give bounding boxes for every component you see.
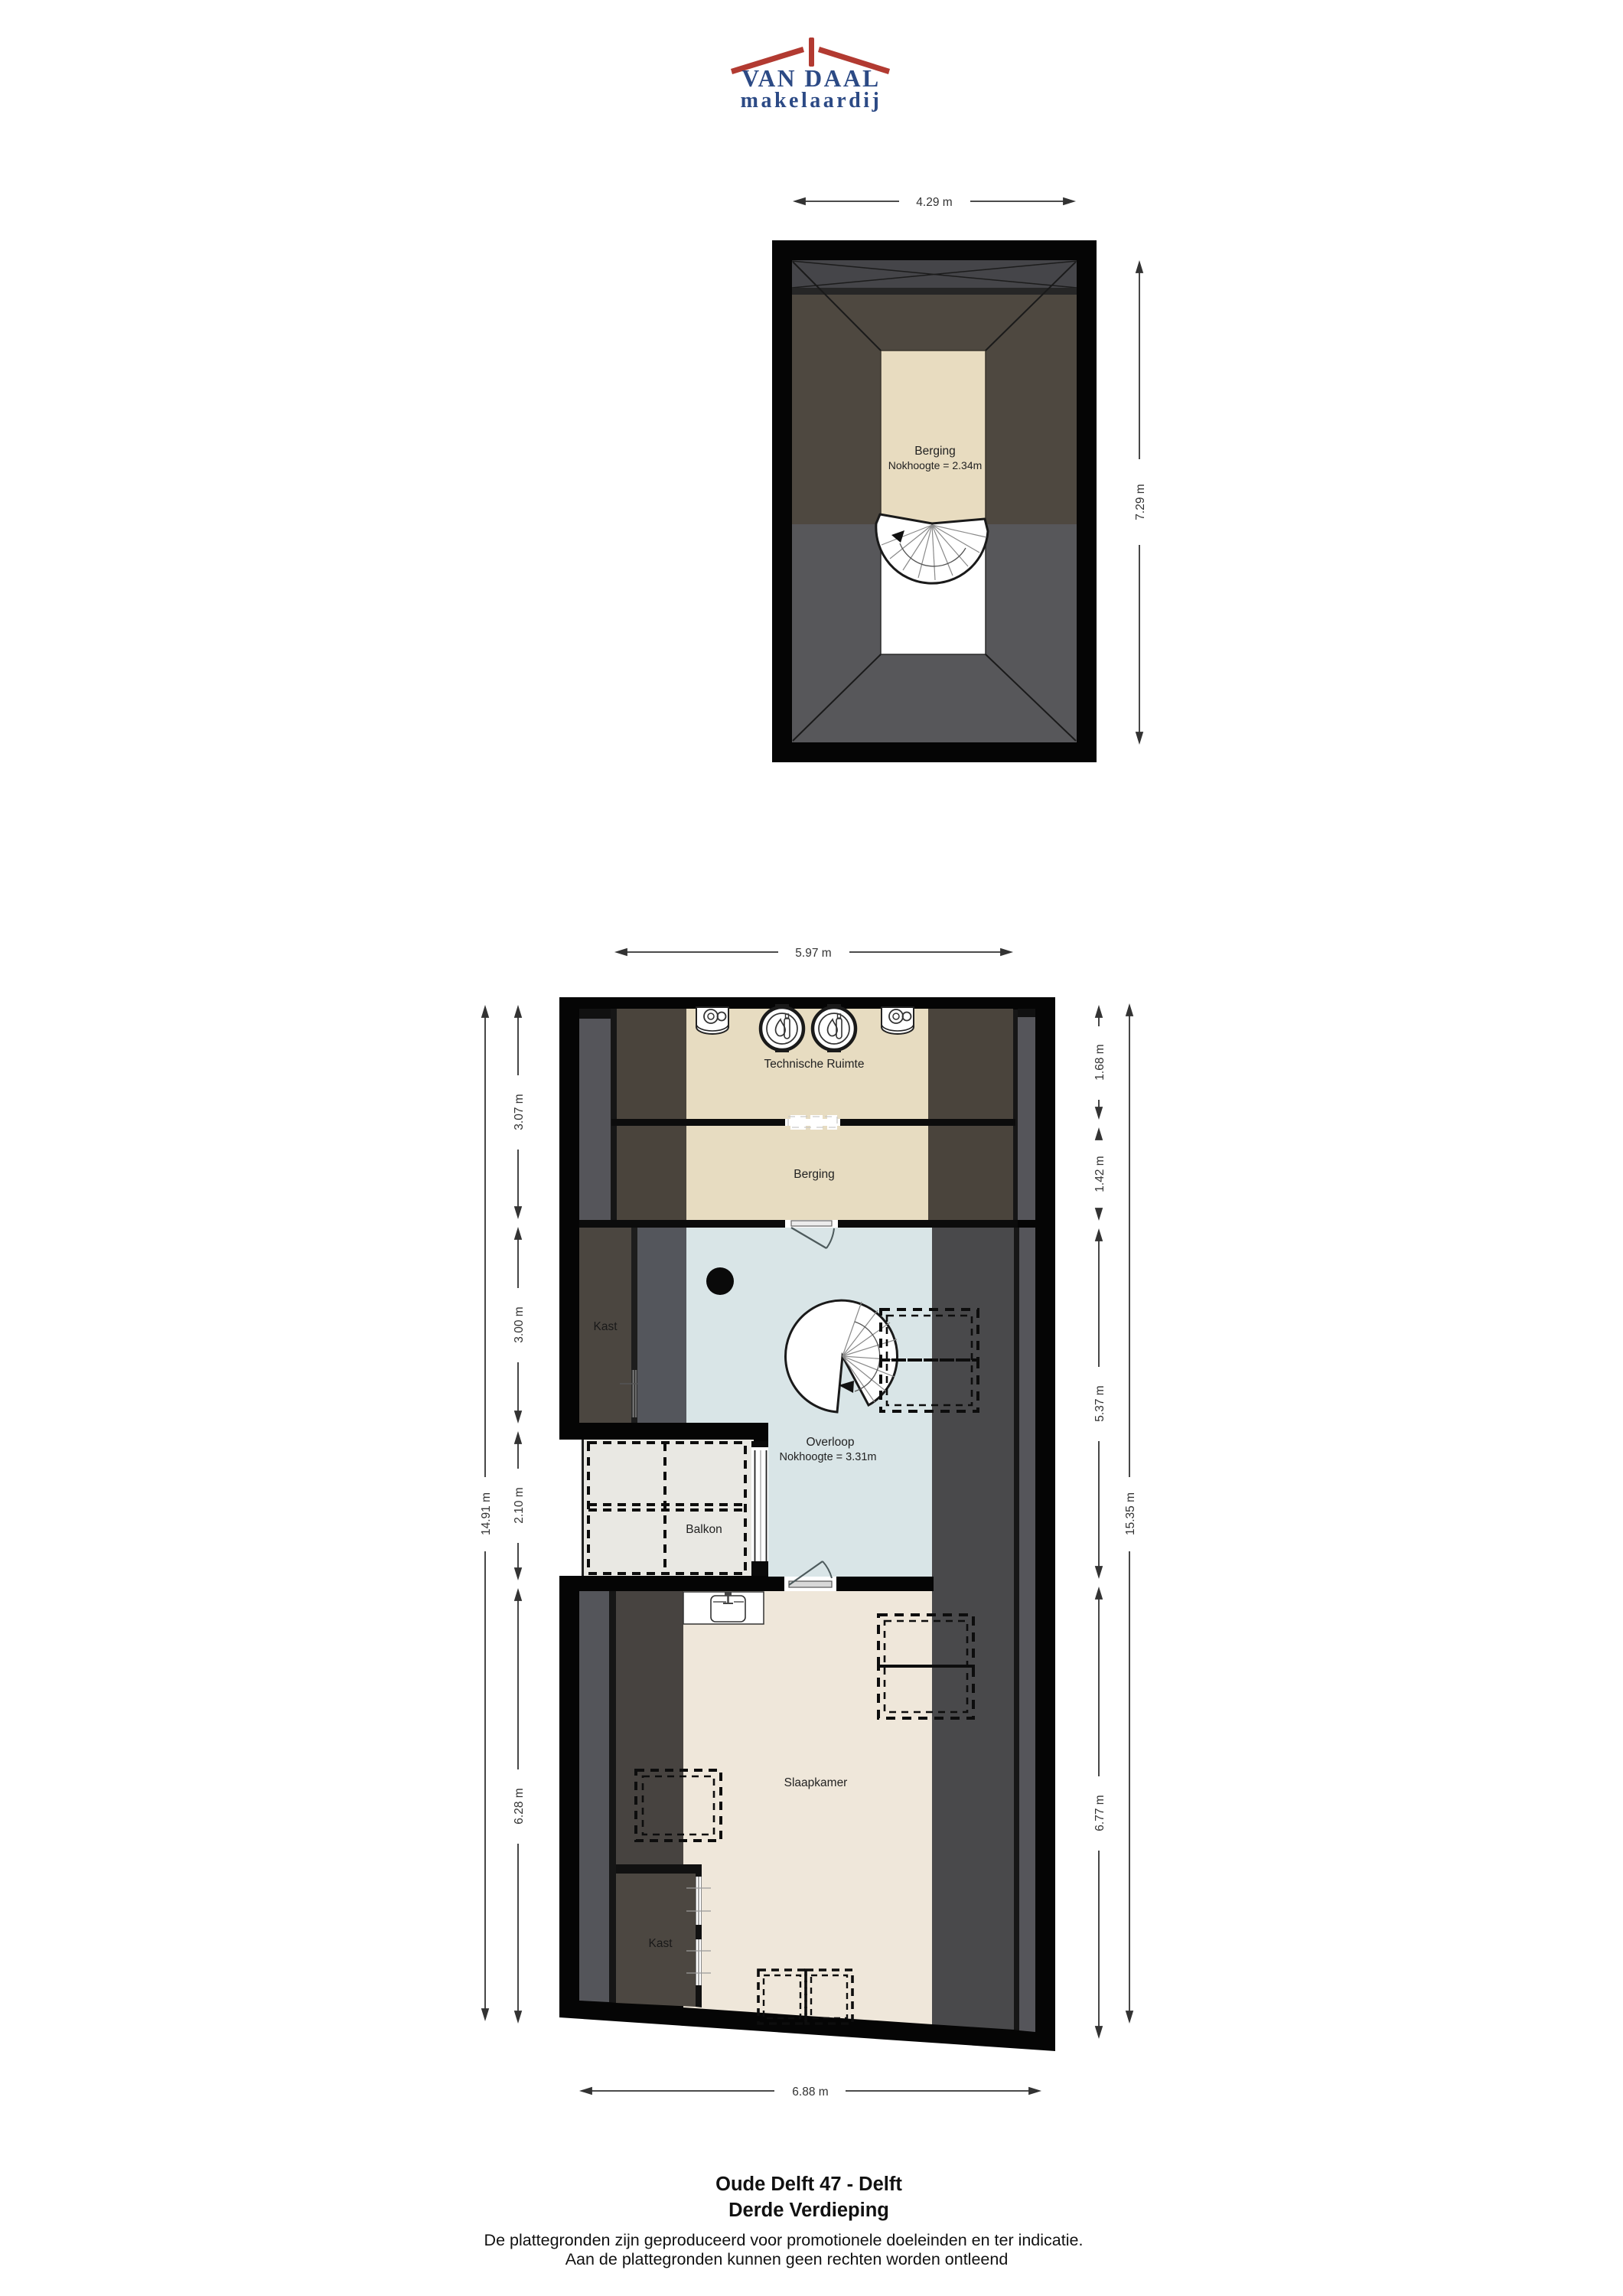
svg-text:Slaapkamer: Slaapkamer <box>784 1776 848 1789</box>
svg-text:7.29 m: 7.29 m <box>1134 484 1147 520</box>
svg-text:Derde Verdieping: Derde Verdieping <box>728 2200 889 2221</box>
svg-text:1.68 m: 1.68 m <box>1093 1044 1106 1080</box>
svg-text:14.91 m: 14.91 m <box>480 1492 493 1535</box>
svg-text:Oude Delft 47 - Delft: Oude Delft 47 - Delft <box>715 2174 902 2195</box>
svg-text:5.97 m: 5.97 m <box>795 947 831 960</box>
svg-text:Aan de plattegronden kunnen ge: Aan de plattegronden kunnen geen rechten… <box>565 2250 1009 2268</box>
svg-text:makelaardij: makelaardij <box>741 89 882 113</box>
svg-text:6.77 m: 6.77 m <box>1093 1795 1106 1831</box>
svg-text:Overloop: Overloop <box>807 1436 855 1449</box>
svg-text:VAN DAAL: VAN DAAL <box>741 65 880 92</box>
svg-text:Nokhoogte = 3.31m: Nokhoogte = 3.31m <box>780 1451 877 1463</box>
svg-text:Technische Ruimte: Technische Ruimte <box>764 1058 865 1071</box>
svg-text:1.42 m: 1.42 m <box>1093 1156 1106 1192</box>
svg-text:Berging: Berging <box>794 1168 834 1181</box>
svg-text:Kast: Kast <box>593 1320 618 1333</box>
svg-text:Nokhoogte = 2.34m: Nokhoogte = 2.34m <box>888 459 983 471</box>
svg-text:3.00 m: 3.00 m <box>513 1306 526 1342</box>
svg-text:15.35 m: 15.35 m <box>1124 1492 1137 1535</box>
svg-text:De plattegronden zijn geproduc: De plattegronden zijn geproduceerd voor … <box>484 2231 1084 2249</box>
svg-text:Kast: Kast <box>648 1937 673 1950</box>
svg-text:5.37 m: 5.37 m <box>1093 1385 1106 1421</box>
svg-text:3.07 m: 3.07 m <box>513 1094 526 1130</box>
svg-text:4.29 m: 4.29 m <box>916 196 952 209</box>
svg-text:6.28 m: 6.28 m <box>513 1788 526 1824</box>
svg-text:Berging: Berging <box>914 445 955 458</box>
svg-text:6.88 m: 6.88 m <box>792 2086 828 2099</box>
svg-text:2.10 m: 2.10 m <box>513 1487 526 1523</box>
svg-text:Balkon: Balkon <box>686 1523 722 1536</box>
